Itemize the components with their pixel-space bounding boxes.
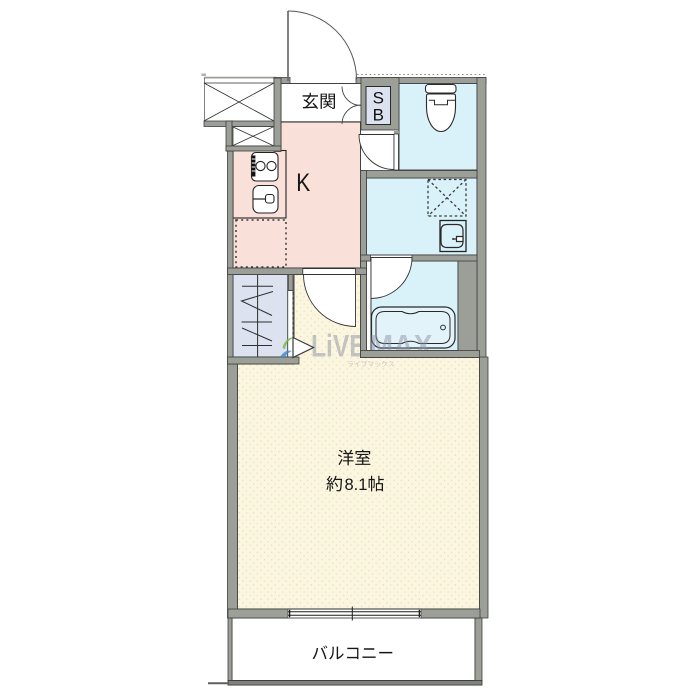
svg-text:LiVE: LiVE [311,328,366,364]
svg-text:K: K [296,168,311,196]
svg-text:8.1: 8.1 [345,476,368,494]
svg-text:B: B [373,106,384,125]
svg-text:MAX: MAX [370,329,433,364]
